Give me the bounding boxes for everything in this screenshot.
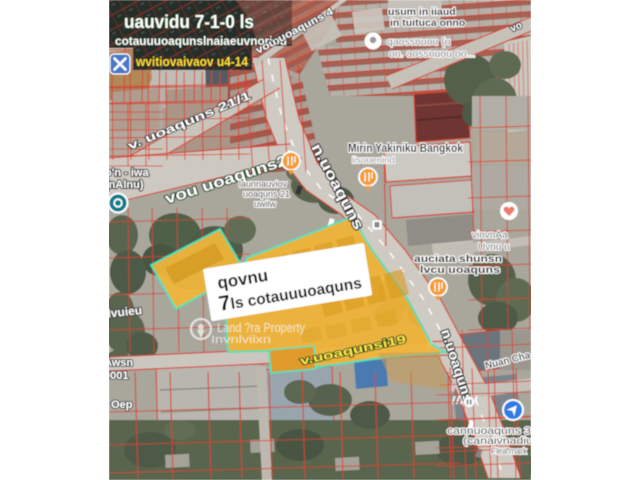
svg-text:o'n - iwa: o'n - iwa xyxy=(105,167,149,179)
svg-text:lvcu uoaquns: lvcu uoaquns xyxy=(420,264,500,276)
svg-text:Awsn: Awsn xyxy=(104,357,133,369)
svg-text:iisuuenind: iisuuenind xyxy=(352,155,395,166)
svg-text:Flea mark: Flea mark xyxy=(491,446,527,456)
svg-text:uoaquns 21: uoaquns 21 xyxy=(243,189,290,199)
svg-text:Invnlviixn: Invnlviixn xyxy=(211,334,271,346)
svg-text:Uvnu u: Uvnu u xyxy=(478,242,510,253)
svg-text:launnauviov: launnauviov xyxy=(239,179,288,189)
svg-text:0001: 0001 xyxy=(104,370,128,382)
svg-text:uauvidu 7-1-0 ls: uauvidu 7-1-0 ls xyxy=(124,12,254,32)
svg-text:Mirin Yakiniku Bangkok: Mirin Yakiniku Bangkok xyxy=(348,143,464,155)
svg-text:Land ?ra Property: Land ?ra Property xyxy=(217,320,305,335)
svg-text:vinvnAa: vinvnAa xyxy=(472,230,508,241)
svg-text:uwilw: uwilw xyxy=(254,199,277,209)
svg-text:in tuituca onno: in tuituca onno xyxy=(390,17,465,29)
svg-text:on. aossnuou oo...: on. aossnuou oo... xyxy=(389,48,475,60)
svg-text:(nAlnu): (nAlnu) xyxy=(105,179,144,191)
svg-text:i Oep: i Oep xyxy=(105,399,133,411)
svg-text:qaossnuou (u: qaossnuou (u xyxy=(387,36,451,48)
svg-text:wvitiovaivaov u4-14: wvitiovaivaov u4-14 xyxy=(135,55,248,69)
